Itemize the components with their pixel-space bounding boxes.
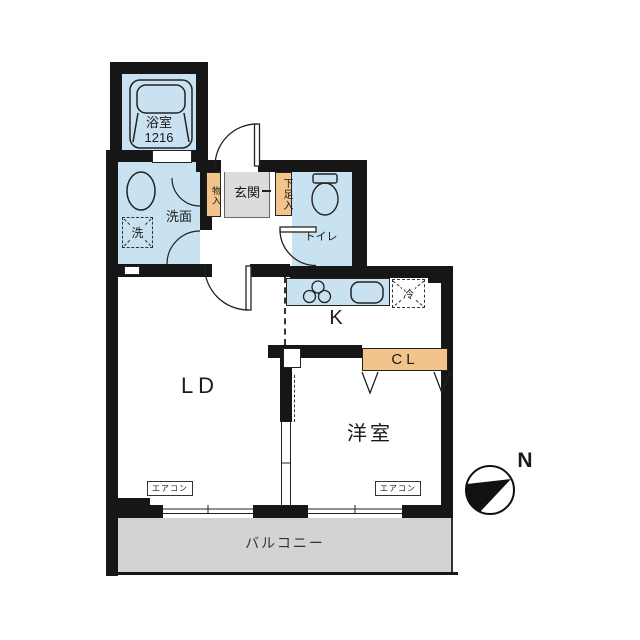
aircon-ld-label: エアコン	[152, 483, 188, 494]
wall-bottom-c	[402, 505, 453, 518]
storage-label: 物入	[211, 186, 221, 206]
washroom-label: 洗面	[158, 210, 200, 224]
aircon-western-label: エアコン	[380, 483, 416, 494]
living-dining-label: LD	[160, 374, 240, 397]
sliding-door	[281, 422, 291, 505]
western-room-label: 洋室	[330, 424, 410, 445]
refrigerator-box: 冷	[392, 279, 425, 308]
bathroom-label: 浴室	[122, 116, 196, 130]
wall-left	[106, 150, 118, 576]
wall-right	[441, 272, 453, 518]
closet-box: CL	[362, 348, 448, 371]
bath-door-sill	[152, 150, 192, 163]
window-ld	[163, 505, 253, 518]
shoe-storage-label: 下足入	[281, 178, 292, 211]
compass-north-label: N	[510, 450, 540, 472]
bathroom-size-label: 1216	[122, 131, 196, 145]
bathroom-room	[110, 62, 208, 162]
shoe-storage-box: 下足入	[275, 172, 292, 216]
compass-north-icon	[466, 466, 514, 514]
wall-bottom-b	[253, 505, 308, 518]
wall-toilet-right	[352, 160, 367, 278]
balcony-label: バルコニー	[200, 536, 370, 551]
wall-ld-top-b	[250, 264, 290, 277]
kitchen-label: K	[318, 308, 354, 329]
pocket-dash-line	[294, 375, 296, 422]
wall-notch-washroom	[124, 266, 140, 275]
washing-machine-box: 洗	[122, 217, 153, 248]
toilet-room	[292, 172, 352, 266]
refrigerator-label: 冷	[402, 286, 415, 302]
pocket-notch	[283, 348, 301, 368]
wall-kitchen-top	[290, 266, 441, 278]
window-western	[308, 505, 402, 518]
entrance-opening	[221, 160, 258, 172]
kitchen-counter	[286, 278, 390, 306]
storage-box: 物入	[206, 172, 221, 217]
balcony-bottom-line	[106, 572, 458, 575]
toilet-label: トイレ	[298, 232, 344, 244]
aircon-ld-box: エアコン	[147, 481, 193, 496]
floor-plan: 物入 下足入 CL 冷 洗 エアコン エアコン 浴室 1216 洗面 玄関 トイ…	[0, 0, 640, 640]
wall-step-stub	[118, 498, 150, 507]
aircon-western-box: エアコン	[375, 481, 421, 496]
wall-ld-top-a	[106, 264, 212, 277]
closet-label: CL	[391, 352, 418, 368]
washing-machine-label: 洗	[131, 224, 143, 241]
closet-folding-door-icon	[362, 372, 450, 393]
entrance-label: 玄関	[224, 186, 270, 200]
